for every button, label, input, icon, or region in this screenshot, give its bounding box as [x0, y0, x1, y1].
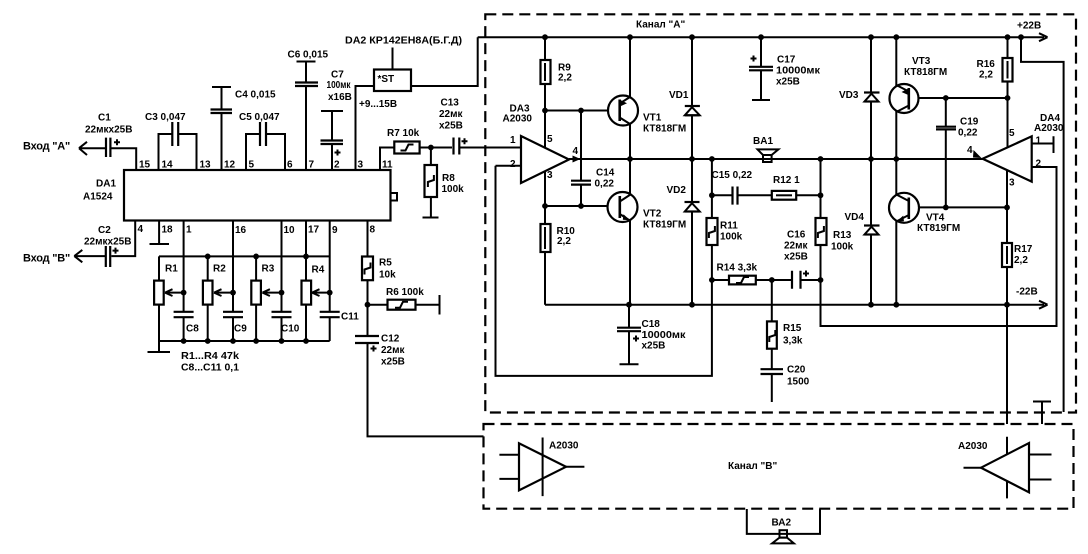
svg-text:VT4: VT4 — [926, 213, 945, 224]
svg-text:8: 8 — [370, 225, 376, 236]
svg-text:C17: C17 — [777, 55, 796, 66]
svg-text:22мк: 22мк — [439, 109, 464, 120]
svg-text:КТ819ГМ: КТ819ГМ — [643, 220, 686, 231]
svg-text:C8...C11 0,1: C8...C11 0,1 — [181, 363, 239, 374]
svg-text:Канал "А": Канал "А" — [636, 20, 685, 31]
svg-text:0,22: 0,22 — [595, 179, 615, 190]
svg-text:C9: C9 — [234, 324, 247, 335]
svg-text:3: 3 — [547, 170, 553, 181]
svg-text:2,2: 2,2 — [979, 70, 993, 81]
svg-text:C20: C20 — [787, 365, 806, 376]
svg-text:VT1: VT1 — [643, 113, 662, 124]
svg-text:9: 9 — [332, 225, 338, 236]
svg-text:1500: 1500 — [787, 377, 810, 388]
svg-text:C1: C1 — [98, 113, 111, 124]
svg-text:VD3: VD3 — [839, 90, 859, 101]
svg-text:+22В: +22В — [1017, 21, 1041, 32]
svg-text:100k: 100k — [442, 184, 465, 195]
svg-text:R8: R8 — [442, 173, 455, 184]
svg-text:A2030: A2030 — [958, 441, 988, 452]
svg-text:5: 5 — [249, 160, 255, 171]
svg-text:х25В: х25В — [642, 341, 666, 352]
svg-text:A2030: A2030 — [549, 441, 579, 452]
svg-text:C2: C2 — [98, 225, 111, 236]
svg-text:C15 0,22: C15 0,22 — [712, 170, 753, 181]
svg-text:R4: R4 — [312, 265, 325, 276]
svg-text:КТ818ГМ: КТ818ГМ — [643, 124, 686, 135]
svg-text:R1: R1 — [165, 264, 178, 275]
svg-text:DA1: DA1 — [96, 179, 116, 190]
svg-text:2,2: 2,2 — [558, 73, 572, 84]
svg-text:C19: C19 — [960, 117, 979, 128]
svg-text:R13: R13 — [833, 230, 852, 241]
svg-text:0,22: 0,22 — [958, 128, 978, 139]
svg-text:КТ818ГМ: КТ818ГМ — [904, 67, 947, 78]
svg-text:1: 1 — [186, 225, 192, 236]
svg-text:R17: R17 — [1014, 244, 1033, 255]
svg-text:КТ819ГМ: КТ819ГМ — [917, 223, 960, 234]
svg-text:C5 0,047: C5 0,047 — [239, 112, 280, 123]
svg-text:+9...15В: +9...15В — [359, 99, 397, 110]
svg-text:R2: R2 — [213, 264, 226, 275]
svg-text:C6 0,015: C6 0,015 — [288, 50, 329, 61]
svg-text:17: 17 — [308, 225, 320, 236]
svg-text:14: 14 — [162, 160, 174, 171]
svg-text:R15: R15 — [783, 323, 802, 334]
svg-text:R1...R4 47k: R1...R4 47k — [181, 351, 239, 362]
svg-text:х25В: х25В — [776, 77, 800, 88]
svg-text:R6 100k: R6 100k — [386, 287, 424, 298]
svg-text:6: 6 — [287, 160, 293, 171]
svg-text:C7: C7 — [331, 70, 344, 81]
svg-text:5: 5 — [547, 134, 553, 145]
svg-text:22мк: 22мк — [784, 241, 809, 252]
svg-text:3: 3 — [358, 160, 364, 171]
svg-text:10: 10 — [284, 225, 296, 236]
svg-text:R11: R11 — [720, 221, 738, 232]
svg-text:C3 0,047: C3 0,047 — [145, 112, 186, 123]
svg-text:C10: C10 — [281, 324, 300, 335]
svg-text:4: 4 — [967, 145, 973, 156]
svg-text:C14: C14 — [596, 168, 615, 179]
svg-text:R5: R5 — [379, 258, 392, 269]
svg-text:C12: C12 — [381, 334, 400, 345]
svg-text:1: 1 — [510, 135, 516, 146]
svg-text:ВА2: ВА2 — [772, 518, 792, 529]
svg-text:C16: C16 — [787, 230, 806, 241]
svg-text:10000мк: 10000мк — [776, 66, 821, 77]
svg-text:Вход "А": Вход "А" — [23, 141, 70, 153]
svg-text:2,2: 2,2 — [557, 236, 571, 247]
svg-text:4: 4 — [573, 146, 579, 157]
svg-text:18: 18 — [162, 225, 174, 236]
svg-text:2: 2 — [1036, 159, 1042, 170]
svg-text:А1524: А1524 — [83, 192, 113, 203]
svg-text:15: 15 — [139, 160, 151, 171]
svg-text:C11: C11 — [341, 312, 359, 323]
svg-text:22мкх25В: 22мкх25В — [84, 237, 131, 248]
svg-text:16: 16 — [235, 225, 247, 236]
svg-text:х16В: х16В — [328, 92, 352, 103]
svg-text:C8: C8 — [186, 324, 199, 335]
svg-text:1: 1 — [1036, 136, 1042, 147]
svg-text:х25В: х25В — [381, 357, 405, 368]
svg-text:13: 13 — [200, 160, 212, 171]
svg-text:R7 10k: R7 10k — [387, 128, 420, 139]
svg-text:R14 3,3k: R14 3,3k — [717, 263, 758, 274]
svg-text:2,2: 2,2 — [1014, 255, 1028, 266]
svg-text:100мк: 100мк — [327, 80, 352, 91]
svg-text:х25В: х25В — [784, 252, 808, 263]
svg-text:100k: 100k — [831, 242, 854, 253]
svg-text:х25В: х25В — [439, 121, 463, 132]
svg-text:12: 12 — [224, 160, 236, 171]
svg-text:DA2 КР142ЕН8А(Б.Г.Д): DA2 КР142ЕН8А(Б.Г.Д) — [345, 36, 462, 47]
svg-text:10000мк: 10000мк — [642, 330, 687, 341]
svg-text:7: 7 — [309, 160, 315, 171]
svg-text:R12 1: R12 1 — [773, 175, 800, 186]
svg-text:VT3: VT3 — [912, 56, 931, 67]
svg-text:2: 2 — [334, 160, 340, 171]
svg-text:22мк: 22мк — [381, 345, 406, 356]
svg-text:5: 5 — [1009, 128, 1015, 139]
svg-text:3: 3 — [1009, 178, 1015, 189]
svg-text:3,3k: 3,3k — [783, 336, 803, 347]
svg-text:VD4: VD4 — [845, 212, 865, 223]
svg-text:VD2: VD2 — [667, 185, 687, 196]
svg-text:11: 11 — [382, 160, 393, 171]
svg-text:A2030: A2030 — [503, 114, 533, 125]
svg-text:100k: 100k — [720, 232, 743, 243]
svg-text:VT2: VT2 — [643, 209, 662, 220]
svg-text:A2030: A2030 — [1034, 123, 1064, 134]
svg-text:*ST: *ST — [378, 74, 395, 85]
svg-text:-22В: -22В — [1016, 287, 1038, 298]
svg-text:BA1: BA1 — [753, 136, 773, 147]
svg-text:2: 2 — [510, 159, 516, 170]
svg-text:R16: R16 — [977, 59, 996, 70]
svg-text:Канал "В": Канал "В" — [728, 461, 777, 472]
svg-text:C13: C13 — [441, 98, 460, 109]
svg-text:Вход "В": Вход "В" — [23, 253, 70, 265]
svg-text:C4 0,015: C4 0,015 — [235, 90, 276, 101]
svg-text:4: 4 — [138, 224, 144, 235]
svg-text:22мкх25В: 22мкх25В — [85, 125, 132, 136]
svg-text:VD1: VD1 — [669, 90, 689, 101]
svg-text:R3: R3 — [262, 264, 275, 275]
svg-text:10k: 10k — [379, 270, 396, 281]
svg-text:C18: C18 — [642, 319, 661, 330]
